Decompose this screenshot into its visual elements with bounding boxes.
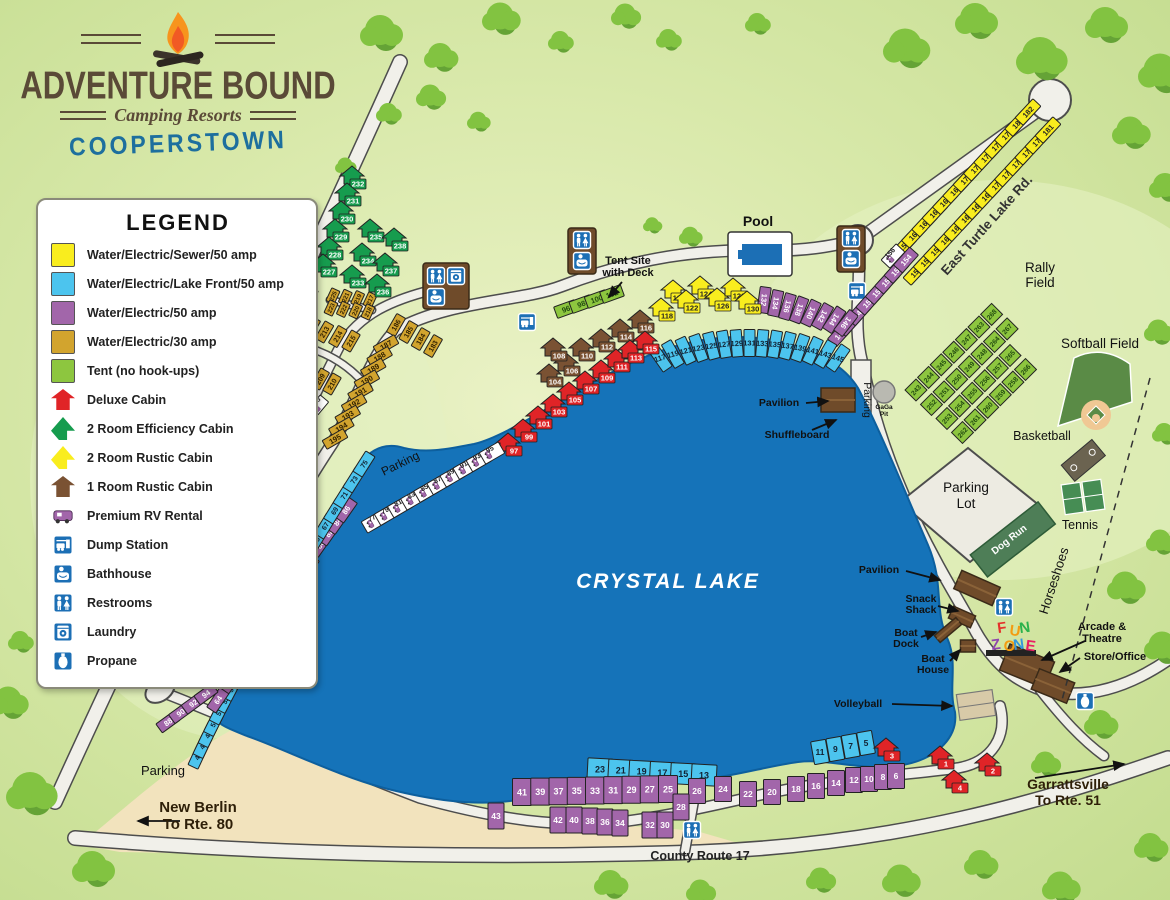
svg-text:20: 20	[767, 787, 777, 797]
svg-text:23: 23	[595, 764, 605, 774]
svg-text:F: F	[996, 619, 1007, 637]
tree	[467, 112, 491, 132]
svg-text:130: 130	[747, 305, 760, 314]
map-label-county: County Route 17	[650, 849, 749, 863]
tree	[8, 631, 34, 653]
map-label-new_berlin: New BerlinTo Rte. 80	[159, 799, 237, 833]
svg-text:115: 115	[645, 345, 657, 354]
site-29: 29	[622, 776, 641, 803]
site-18: 18	[788, 777, 805, 802]
bath-icon	[574, 253, 591, 270]
tree	[6, 772, 58, 815]
tree	[72, 851, 115, 887]
dump-icon	[849, 283, 866, 300]
wc-icon	[684, 822, 701, 839]
tree	[1016, 37, 1068, 80]
site-16: 16	[808, 774, 825, 799]
svg-text:40: 40	[569, 815, 579, 825]
site-133: 133	[756, 329, 769, 357]
dump-station-icon	[50, 533, 76, 557]
volleyball-court	[956, 690, 995, 721]
logo-title: ADVENTURE BOUND	[18, 66, 338, 105]
svg-text:34: 34	[615, 818, 625, 828]
rv-rental-icon	[50, 504, 76, 528]
site-26: 26	[689, 779, 706, 804]
laundry-icon	[448, 268, 465, 285]
deluxe-cabin-icon	[51, 389, 75, 410]
svg-text:116: 116	[640, 324, 652, 333]
legend-item: 2 Room Rustic Cabin	[50, 445, 306, 470]
site-24: 24	[715, 777, 732, 802]
svg-text:5: 5	[864, 738, 869, 748]
svg-text:21: 21	[616, 765, 626, 775]
legend-title: LEGEND	[50, 210, 306, 236]
svg-text:24: 24	[718, 784, 728, 794]
site-14: 14	[828, 771, 845, 796]
map-label-store: Store/Office	[1084, 651, 1146, 663]
map-label-pool: Pool	[743, 213, 773, 229]
tree	[0, 687, 29, 719]
tree	[1138, 54, 1170, 94]
restrooms-icon	[50, 591, 76, 615]
rustic-cabin-2-icon	[51, 446, 75, 469]
tree	[1149, 173, 1170, 202]
wc-icon	[996, 599, 1013, 616]
wc-icon	[428, 268, 445, 285]
svg-text:101: 101	[538, 420, 551, 429]
map-label-tent_deck: Tent Sitewith Deck	[601, 255, 654, 279]
svg-text:126: 126	[717, 302, 730, 311]
legend-item: Laundry	[50, 619, 306, 644]
svg-text:99: 99	[525, 433, 533, 442]
svg-text:9: 9	[833, 744, 838, 754]
map-label-rally: RallyField	[1025, 260, 1055, 290]
map-label-basketball: Basketball	[1013, 429, 1071, 443]
svg-text:129: 129	[730, 339, 743, 349]
legend-item: Restrooms	[50, 590, 306, 615]
svg-text:29: 29	[626, 785, 636, 795]
tree	[1107, 572, 1146, 604]
svg-text:18: 18	[791, 784, 801, 794]
svg-text:Z: Z	[990, 636, 1001, 654]
tree	[964, 850, 998, 879]
site-27: 27	[640, 776, 659, 803]
site-31: 31	[604, 777, 623, 804]
legend-item: Water/Electric/Lake Front/50 amp	[50, 271, 306, 296]
svg-text:104: 104	[549, 378, 562, 387]
svg-text:N: N	[1018, 619, 1031, 637]
site-20: 20	[764, 780, 781, 805]
svg-text:229: 229	[335, 233, 348, 242]
svg-text:108: 108	[553, 352, 566, 361]
svg-text:39: 39	[535, 787, 545, 797]
tree	[1084, 710, 1118, 739]
site-33: 33	[586, 777, 605, 804]
campground-map: { "logo": {"name": "ADVENTURE BOUND", "t…	[0, 0, 1170, 900]
map-label-garrattsville: GarrattsvilleTo Rte. 51	[1027, 776, 1109, 808]
legend-item: Water/Electric/50 amp	[50, 300, 306, 325]
svg-text:231: 231	[347, 197, 360, 206]
svg-text:1: 1	[944, 760, 948, 769]
tree	[679, 227, 703, 247]
tent-site-swatch	[51, 359, 75, 383]
logo-tagline: Camping Resorts	[18, 105, 338, 126]
map-label-pavilion_s: Pavilion	[859, 564, 899, 576]
map-label-boat_house: BoatHouse	[917, 653, 949, 676]
purple-site-swatch	[51, 301, 75, 325]
tree	[643, 217, 662, 233]
svg-text:118: 118	[661, 312, 673, 321]
tree	[1042, 872, 1081, 900]
site-112: 112	[589, 329, 615, 352]
site-238: 238	[382, 228, 408, 251]
gold-site-swatch	[51, 330, 75, 354]
map-label-boat_dock: BoatDock	[893, 627, 919, 650]
svg-text:131: 131	[743, 339, 756, 348]
pavilion-north	[821, 388, 855, 412]
site-43: 43	[488, 803, 504, 829]
site-237: 237	[373, 253, 399, 276]
legend-item: Bathhouse	[50, 561, 306, 586]
store-office	[1031, 669, 1074, 704]
svg-text:38: 38	[585, 816, 595, 826]
yellow-site-swatch	[51, 243, 75, 267]
tree	[548, 31, 574, 53]
site-41: 41	[513, 779, 532, 806]
svg-text:30: 30	[660, 820, 670, 830]
site-32: 32	[642, 812, 658, 838]
rustic-cabin-1-icon	[51, 476, 75, 497]
svg-text:7: 7	[848, 741, 853, 751]
efficiency-cabin-icon	[51, 417, 75, 440]
map-label-shuffleboard: Shuffleboard	[765, 429, 830, 441]
tree	[594, 870, 628, 899]
pointer-arrow	[1042, 641, 1085, 660]
legend-item: Water/Electric/30 amp	[50, 329, 306, 354]
campfire-icon	[18, 10, 338, 68]
svg-text:6: 6	[894, 771, 899, 781]
svg-text:36: 36	[600, 817, 610, 827]
propane-icon	[1077, 693, 1094, 710]
map-label-volleyball: Volleyball	[834, 698, 882, 710]
svg-text:127: 127	[717, 339, 730, 349]
laundry-icon	[50, 620, 76, 644]
site-12: 12	[846, 768, 863, 793]
tree	[424, 43, 458, 72]
svg-text:10: 10	[864, 774, 874, 784]
svg-text:27: 27	[645, 785, 655, 795]
site-40: 40	[566, 807, 582, 833]
svg-text:97: 97	[510, 447, 518, 456]
svg-text:2: 2	[991, 767, 995, 776]
site-235: 235	[358, 219, 384, 242]
tree	[656, 29, 682, 51]
tree	[360, 15, 403, 51]
tree	[1085, 7, 1128, 43]
svg-text:238: 238	[394, 242, 407, 251]
tree	[745, 13, 771, 35]
svg-text:113: 113	[630, 354, 642, 363]
site-110: 110	[569, 338, 595, 361]
site-42: 42	[550, 807, 566, 833]
legend-item: 1 Room Rustic Cabin	[50, 474, 306, 499]
svg-text:103: 103	[553, 408, 566, 417]
tree	[1031, 752, 1061, 777]
svg-text:19: 19	[637, 767, 647, 777]
cul-de-sac	[1029, 79, 1071, 121]
site-116: 116	[628, 310, 654, 333]
boat-house	[961, 640, 976, 652]
svg-text:233: 233	[352, 279, 365, 288]
map-label-snack: SnackShack	[906, 593, 937, 616]
tree	[611, 4, 641, 29]
bathhouse-icon	[50, 562, 76, 586]
tree	[686, 880, 716, 900]
legend-item: Water/Electric/Sewer/50 amp	[50, 242, 306, 267]
svg-text:111: 111	[616, 363, 628, 372]
site-129: 129	[730, 329, 743, 357]
bath-icon	[428, 289, 445, 306]
svg-text:15: 15	[678, 769, 688, 779]
svg-text:106: 106	[566, 367, 579, 376]
propane-icon	[50, 649, 76, 673]
legend-item: 2 Room Efficiency Cabin	[50, 416, 306, 441]
logo: ADVENTURE BOUND Camping Resorts COOPERST…	[18, 10, 338, 157]
map-label-arcade: Arcade &Theatre	[1078, 621, 1126, 645]
lake-name: CRYSTAL LAKE	[576, 570, 760, 593]
site-30: 30	[657, 812, 673, 838]
svg-text:107: 107	[585, 385, 598, 394]
svg-text:42: 42	[553, 815, 563, 825]
legend-item: Deluxe Cabin	[50, 387, 306, 412]
wc-icon	[574, 232, 591, 249]
svg-text:125: 125	[704, 341, 718, 352]
svg-text:234: 234	[362, 257, 375, 266]
svg-text:122: 122	[686, 304, 699, 313]
map-label-pavilion_n: Pavilion	[759, 397, 799, 409]
site-6: 6	[888, 764, 905, 789]
svg-text:35: 35	[572, 786, 582, 796]
tree	[882, 865, 921, 897]
svg-text:31: 31	[608, 785, 618, 795]
tree	[416, 85, 446, 110]
fun-zone-sign: FUNZONE	[986, 619, 1037, 656]
svg-text:230: 230	[341, 215, 354, 224]
svg-text:109: 109	[601, 374, 614, 383]
svg-text:135: 135	[768, 339, 781, 349]
svg-text:137: 137	[781, 341, 795, 352]
svg-text:33: 33	[590, 786, 600, 796]
svg-text:8: 8	[881, 772, 886, 782]
svg-text:110: 110	[581, 352, 593, 361]
legend-item: Propane	[50, 648, 306, 673]
svg-text:105: 105	[569, 396, 582, 405]
svg-text:232: 232	[352, 180, 365, 189]
gaga-pit	[873, 381, 895, 403]
map-label-parking_sw: Parking	[141, 763, 185, 778]
site-39: 39	[531, 778, 550, 805]
svg-text:12: 12	[849, 775, 859, 785]
site-37: 37	[549, 778, 568, 805]
svg-text:133: 133	[756, 339, 769, 349]
svg-text:N: N	[1012, 636, 1025, 654]
svg-text:22: 22	[743, 789, 753, 799]
tree	[1144, 632, 1170, 664]
tree	[955, 3, 998, 39]
tree	[482, 2, 521, 34]
site-28: 28	[673, 794, 689, 820]
svg-text:37: 37	[553, 786, 563, 796]
svg-text:112: 112	[601, 343, 613, 352]
svg-text:16: 16	[811, 781, 821, 791]
legend-item: Dump Station	[50, 532, 306, 557]
legend-item: Premium RV Rental	[50, 503, 306, 528]
tree	[1134, 833, 1168, 862]
svg-text:237: 237	[385, 267, 398, 276]
wc-icon	[843, 230, 860, 247]
site-34: 34	[612, 810, 628, 836]
site-131: 131	[743, 330, 756, 357]
tree	[1112, 117, 1151, 149]
svg-text:3: 3	[890, 752, 894, 761]
svg-text:25: 25	[663, 784, 673, 794]
svg-text:26: 26	[692, 786, 702, 796]
blue-site-swatch	[51, 272, 75, 296]
svg-text:14: 14	[831, 778, 841, 788]
map-label-parking_e: Parking	[861, 382, 873, 418]
site-36: 36	[597, 809, 613, 835]
dump-icon	[519, 314, 536, 331]
svg-text:228: 228	[329, 251, 342, 260]
svg-text:11: 11	[816, 747, 825, 757]
site-35: 35	[567, 777, 586, 804]
svg-text:43: 43	[491, 811, 501, 821]
site-108: 108	[541, 338, 567, 361]
site-38: 38	[582, 808, 598, 834]
bath-icon	[843, 251, 860, 268]
tennis-courts	[1061, 479, 1105, 514]
svg-text:28: 28	[676, 802, 686, 812]
svg-text:235: 235	[370, 233, 383, 242]
tree	[806, 868, 836, 893]
site-22: 22	[740, 782, 757, 807]
legend-panel: LEGEND Water/Electric/Sewer/50 amp Water…	[36, 198, 318, 689]
legend-item: Tent (no hook-ups)	[50, 358, 306, 383]
svg-text:236: 236	[377, 288, 390, 297]
map-label-tennis: Tennis	[1062, 518, 1098, 532]
svg-text:227: 227	[323, 268, 336, 277]
tree	[883, 29, 930, 69]
svg-text:41: 41	[517, 787, 527, 797]
map-label-softball: Softball Field	[1061, 336, 1139, 351]
svg-text:32: 32	[645, 820, 655, 830]
